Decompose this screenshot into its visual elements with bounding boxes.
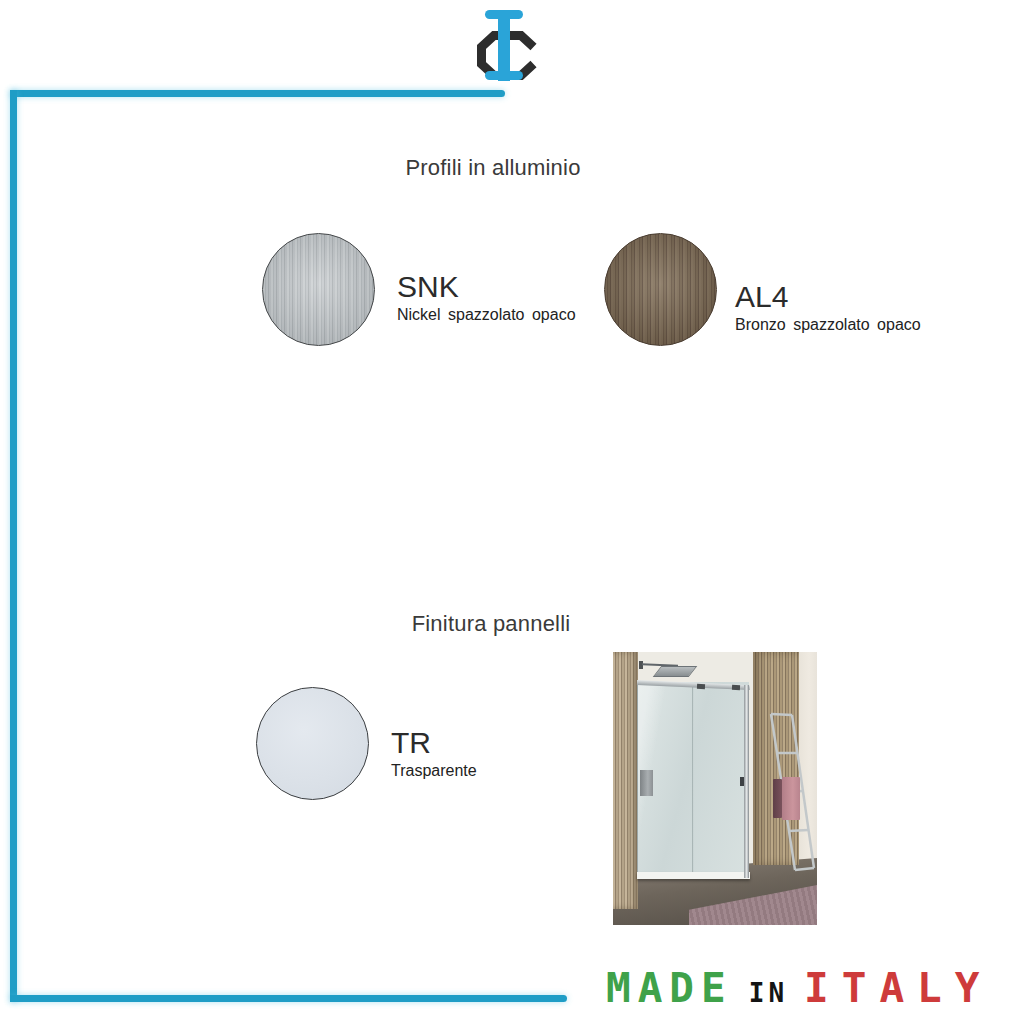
- swatch-labels: TR Trasparente: [391, 687, 477, 800]
- swatch-code: AL4: [735, 281, 921, 313]
- bronze-finish-swatch[interactable]: [604, 233, 717, 346]
- swatch-name: Nickel spazzolato opaco: [397, 305, 576, 325]
- section-title-profili: Profili in alluminio: [283, 155, 703, 181]
- swatch-option-tr[interactable]: TR Trasparente: [256, 687, 477, 800]
- swatch-code: SNK: [397, 271, 576, 303]
- photo-wood-slats-left: [613, 652, 638, 909]
- photo-rail-bracket: [732, 685, 740, 690]
- made-text: MADE: [606, 964, 733, 1012]
- photo-towel-dark: [773, 779, 782, 818]
- swatch-labels: AL4 Bronzo spazzolato opaco: [735, 233, 921, 346]
- made-in-italy-mark: MADE in ITALY: [606, 964, 992, 1012]
- swatch-code: TR: [391, 727, 477, 759]
- frame-line-bottom: [10, 995, 567, 1002]
- transparent-finish-swatch[interactable]: [256, 687, 369, 800]
- photo-towel-pink: [782, 777, 800, 820]
- nickel-finish-swatch[interactable]: [262, 233, 375, 346]
- photo-vertical-profile: [744, 685, 749, 878]
- swatch-option-snk[interactable]: SNK Nickel spazzolato opaco: [262, 233, 576, 346]
- catalog-page: Profili in alluminio SNK Nickel spazzola…: [0, 0, 1024, 1024]
- in-text: in: [749, 978, 788, 1008]
- shower-enclosure-photo: [613, 652, 817, 925]
- section-title-finitura: Finitura pannelli: [281, 611, 701, 637]
- photo-door-handle: [740, 777, 744, 786]
- photo-shower-mixer: [640, 770, 653, 796]
- photo-shower-tray: [637, 872, 750, 879]
- photo-rain-shower-head: [653, 666, 698, 677]
- swatch-option-al4[interactable]: AL4 Bronzo spazzolato opaco: [604, 233, 921, 346]
- photo-glass-door-edge: [692, 684, 694, 878]
- italy-text: ITALY: [804, 964, 992, 1012]
- swatch-labels: SNK Nickel spazzolato opaco: [397, 233, 576, 346]
- swatch-name: Trasparente: [391, 761, 477, 781]
- photo-rail-bracket: [697, 684, 705, 689]
- brand-logo-icon: [470, 8, 542, 92]
- frame-line-left: [10, 90, 17, 1002]
- frame-line-top: [10, 90, 505, 97]
- swatch-name: Bronzo spazzolato opaco: [735, 315, 921, 335]
